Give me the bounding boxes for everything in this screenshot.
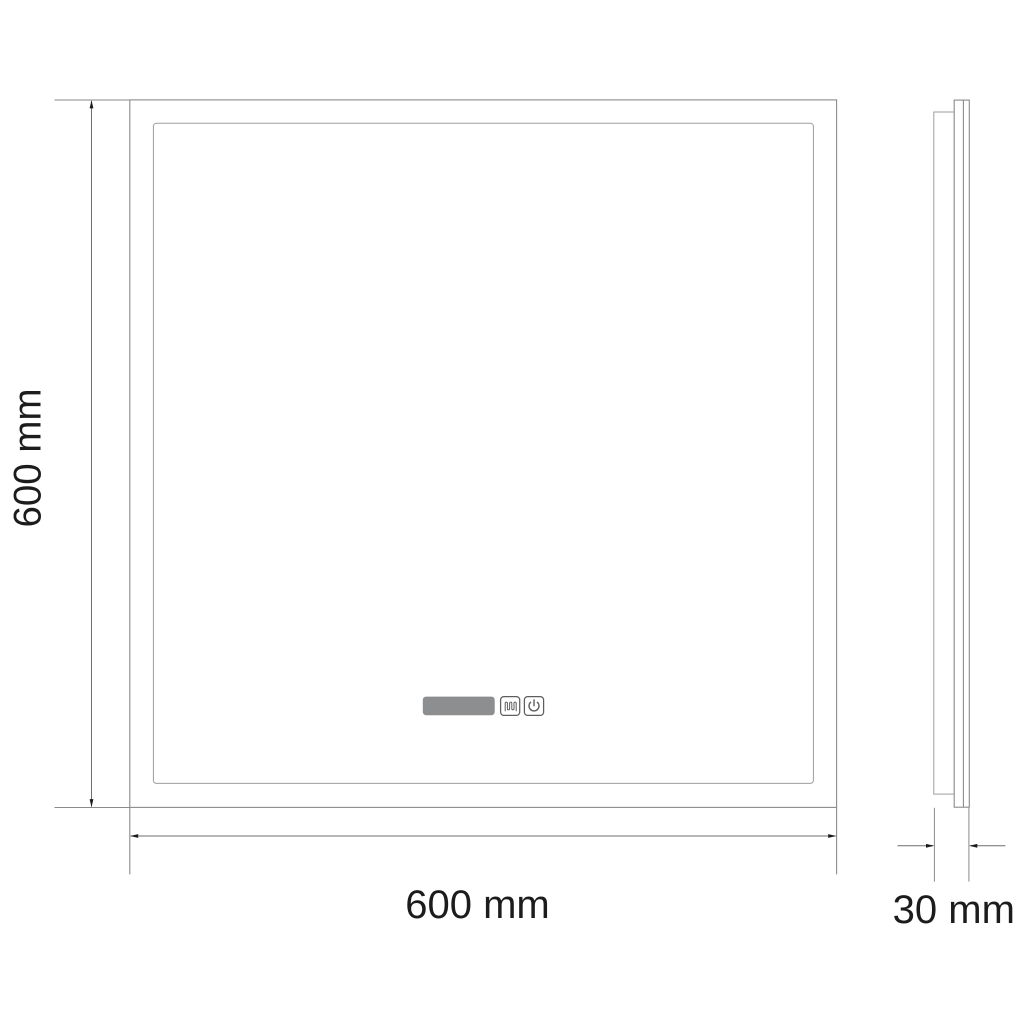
svg-text:600 mm: 600 mm bbox=[7, 388, 50, 527]
svg-text:600 mm: 600 mm bbox=[405, 883, 550, 927]
svg-text:30 mm: 30 mm bbox=[893, 888, 1015, 932]
